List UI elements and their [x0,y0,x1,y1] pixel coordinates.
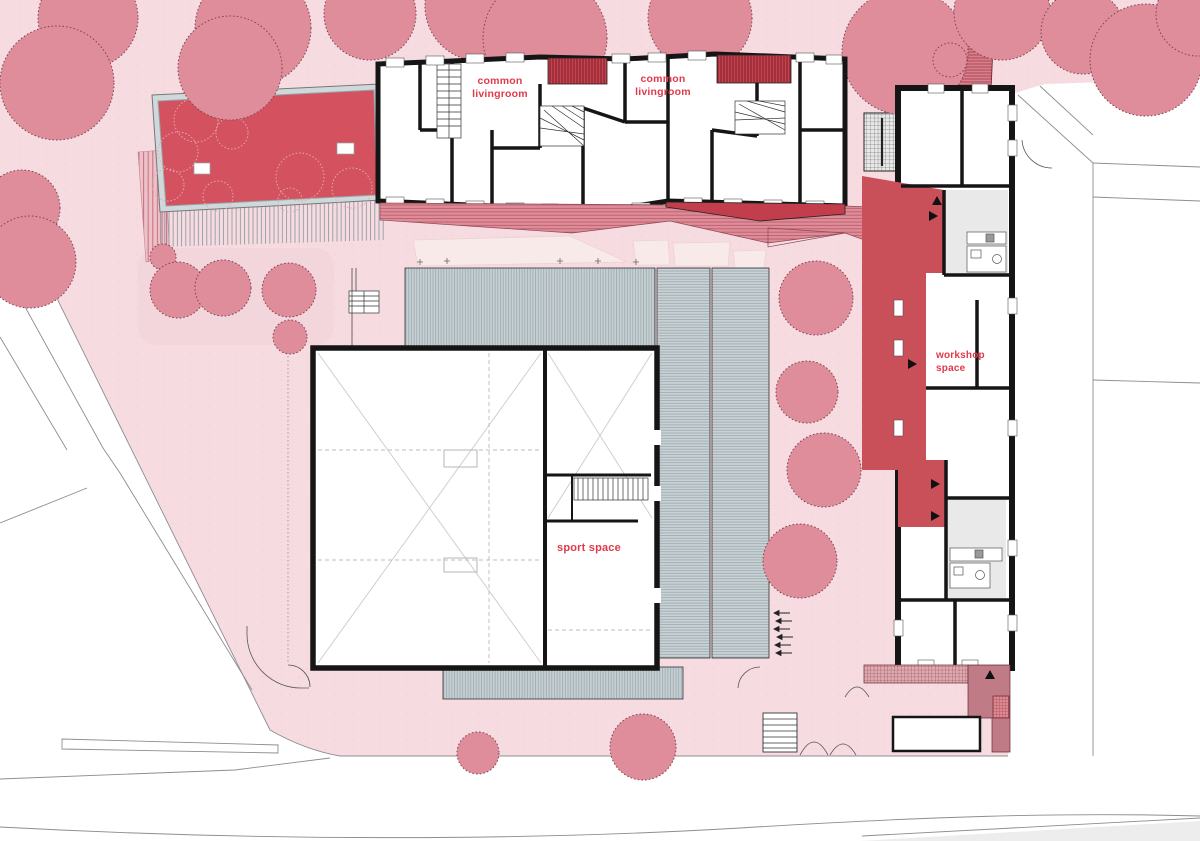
site-plan: common livingroom common livingroom [0,0,1200,841]
skylight [337,143,354,154]
gray-roof-north [405,268,655,349]
pool-terrace [138,84,386,262]
tree [787,433,861,507]
tree [457,732,499,774]
tree [763,524,837,598]
stair [540,106,584,146]
tree [779,261,853,335]
stair [735,101,785,134]
red-roof-patch [717,55,791,83]
workshop-space-label-line2: space [936,363,966,374]
tree [933,43,967,77]
site-plan-drawing: common livingroom common livingroom [0,0,1200,841]
common-livingroom-label-2-line2: livingroom [635,86,691,98]
common-livingroom-label-1-line2: livingroom [472,88,528,100]
exterior-stair-red [993,696,1009,718]
gray-roof-east-1 [657,268,710,658]
sport-hall-outline [313,348,657,668]
sport-space-label: sport space [557,542,621,554]
gray-roof-south [443,667,683,699]
tree [273,320,307,354]
tree [178,16,282,120]
workshop-space-label-line1: workshop [935,350,985,361]
garden-stair [763,713,797,752]
tree [262,263,316,317]
gray-roof-east-2 [712,268,769,658]
skylight [194,163,210,174]
tree [610,714,676,780]
outbuilding [893,717,980,751]
tree [195,260,251,316]
stair [437,64,461,138]
common-livingroom-label-2-line1: common [641,73,686,85]
tree [776,361,838,423]
north-building: common livingroom common livingroom [378,51,845,215]
red-roof-patch [548,58,607,84]
tree [0,26,114,140]
common-livingroom-label-1-line1: common [478,75,523,87]
